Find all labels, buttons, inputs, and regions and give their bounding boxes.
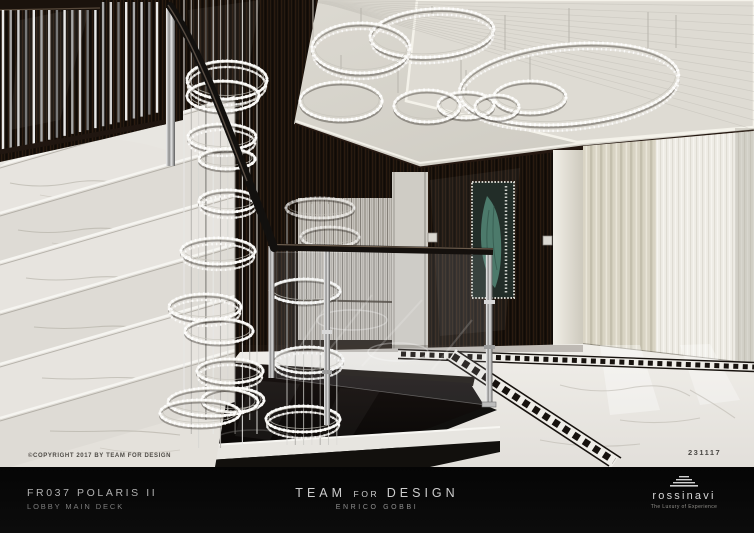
balustrade-post bbox=[269, 246, 275, 378]
balustrade-post bbox=[324, 250, 330, 425]
render-number: 231117 bbox=[688, 448, 721, 457]
copyright-note: ©COPYRIGHT 2017 BY TEAM FOR DESIGN bbox=[28, 453, 171, 459]
stacked-hull-lines-icon bbox=[669, 476, 699, 488]
wall-pilaster bbox=[553, 150, 583, 346]
studio-block: TEAM FOR DESIGN ENRICO GOBBI bbox=[295, 486, 458, 511]
project-subtitle: LOBBY MAIN DECK bbox=[27, 502, 157, 511]
project-title: FR037 POLARIS II bbox=[27, 487, 157, 499]
balustrade-post bbox=[486, 249, 493, 405]
brand-tagline: The Luxury of Experience bbox=[636, 504, 732, 510]
rossinavi-logo: rossinavi The Luxury of Experience bbox=[636, 476, 732, 510]
studio-title-part: FOR bbox=[354, 489, 380, 499]
designer-name: ENRICO GOBBI bbox=[295, 504, 458, 511]
light-switch bbox=[428, 233, 437, 242]
handrail-post bbox=[166, 8, 175, 166]
brand-name: rossinavi bbox=[636, 490, 732, 502]
studio-title-part: TEAM bbox=[295, 486, 346, 500]
yacht-lobby-rendering: ©COPYRIGHT 2017 BY TEAM FOR DESIGN 23111… bbox=[0, 0, 754, 467]
design-presentation-board: ©COPYRIGHT 2017 BY TEAM FOR DESIGN 23111… bbox=[0, 0, 754, 533]
project-block: FR037 POLARIS II LOBBY MAIN DECK bbox=[27, 487, 157, 511]
studio-title: TEAM FOR DESIGN bbox=[295, 486, 458, 500]
lobby-scene bbox=[0, 0, 754, 467]
light-switch bbox=[543, 236, 552, 245]
studio-title-part: DESIGN bbox=[387, 486, 459, 500]
balustrade-top-rail bbox=[274, 247, 493, 252]
caption-bar: FR037 POLARIS II LOBBY MAIN DECK TEAM FO… bbox=[0, 467, 754, 533]
curtains bbox=[583, 128, 754, 366]
